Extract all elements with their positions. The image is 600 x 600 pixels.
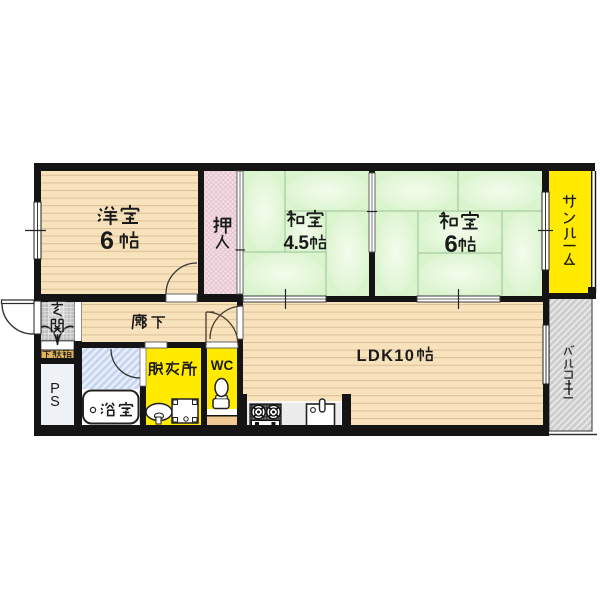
svg-text:S: S [50,394,60,410]
svg-text:LDK10: LDK10 [357,347,416,365]
svg-text:6: 6 [100,227,114,255]
svg-text:WC: WC [211,358,234,373]
svg-text:4.5: 4.5 [284,233,310,254]
svg-text:6: 6 [444,231,457,258]
